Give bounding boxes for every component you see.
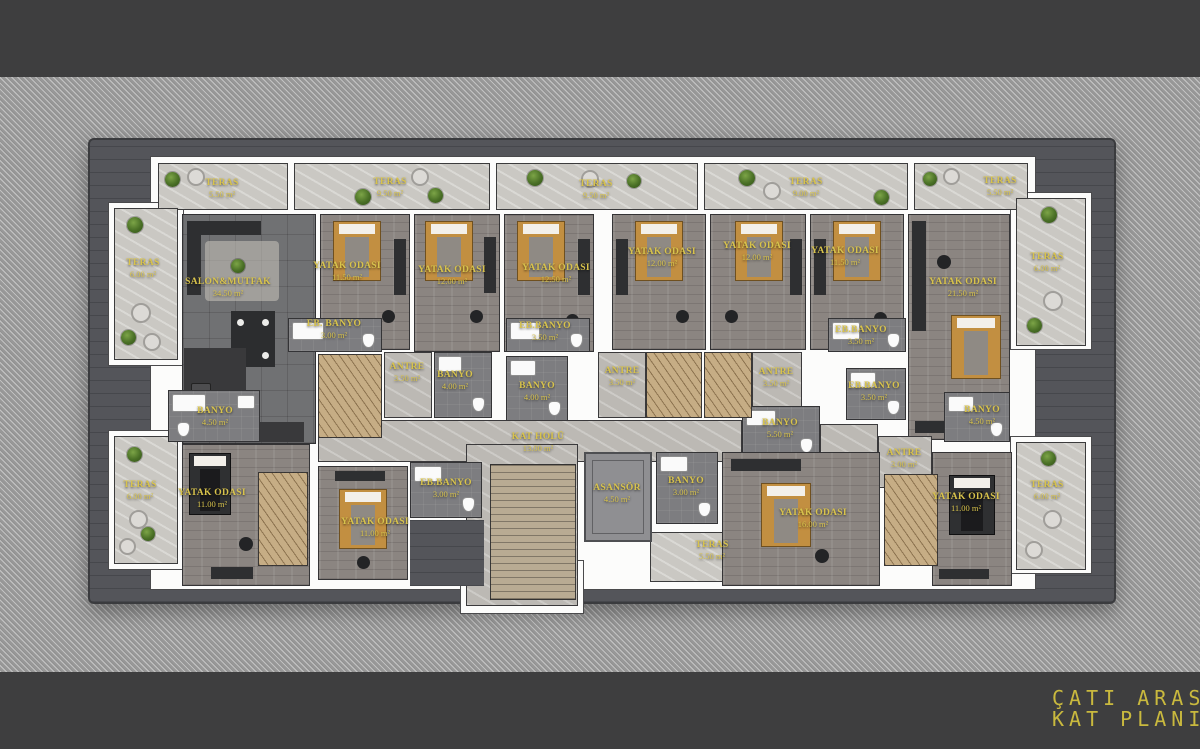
room-name: TERAS [579,179,612,190]
terrace-table [943,168,960,185]
label-eb-banyo-5: EB.BANYO3.00 m² [420,478,472,500]
label-yatak-odasi-3: YATAK ODASI12.50 m² [522,263,590,285]
plan-title-line2: KAT PLANI [1052,709,1200,730]
toilet [570,333,583,348]
room-teras-left-upper [114,208,178,360]
room-area: 12.50 m² [522,275,590,285]
room-name: YATAK ODASI [929,277,997,288]
room-yatak-odasi-4 [612,214,706,350]
room-area: 5.50 m² [762,430,798,440]
room-name: ANTRE [887,448,922,459]
room-name: TERAS [1030,252,1063,263]
room-area: 3.00 m² [420,490,472,500]
room-name: EB.BANYO [848,381,900,392]
top-band [0,0,1200,77]
room-area: 6.00 m² [1030,264,1063,274]
unit-stairs [258,472,308,566]
terrace-table [1043,510,1062,529]
label-banyo-2: BANYO4.00 m² [519,381,555,403]
room-yatak-odasi-5 [710,214,806,350]
label-antre-3: ANTRE3.50 m² [759,367,794,389]
terrace-table [119,538,136,555]
room-area: 12.00 m² [628,259,696,269]
plan-title: ÇATI ARASI KAT PLANI [1052,688,1200,730]
terrace-table [763,182,781,200]
room-area: 11.00 m² [932,504,1000,514]
room-area: 3.00 m² [307,331,361,341]
room-name: BANYO [964,405,1000,416]
label-antre-2: ANTRE3.50 m² [605,366,640,388]
room-area: 11.00 m² [341,529,409,539]
wardrobe [335,471,385,481]
plant [923,172,937,186]
room-area: 12.00 m² [418,277,486,287]
sink [237,395,255,409]
room-area: 3.50 m² [519,333,571,343]
room-name: YATAK ODASI [628,247,696,258]
label-kat-holu: KAT HOLÜ13.00 m² [512,432,564,454]
room-name: TERAS [205,178,238,189]
label-antre-4: ANTRE3.00 m² [887,448,922,470]
label-yatak-odasi-7: YATAK ODASI21.50 m² [929,277,997,299]
label-yatak-odasi-1: YATAK ODASI11.50 m² [313,261,381,283]
room-name: YATAK ODASI [313,261,381,272]
room-area: 4.50 m² [964,417,1000,427]
plant [627,174,641,188]
room-area: 6.00 m² [126,270,159,280]
toilet [800,438,813,453]
label-yatak-odasi-4: YATAK ODASI12.00 m² [628,247,696,269]
room-area: 11.50 m² [313,273,381,283]
room-name: ANTRE [605,366,640,377]
room-name: TERAS [789,177,822,188]
floor-plan-render: ÇATI ARASI KAT PLANI [0,0,1200,749]
wardrobe [731,459,801,471]
label-banyo-6: BANYO3.00 m² [668,476,704,498]
room-name: ANTRE [390,362,425,373]
room-area: 11.00 m² [178,500,246,510]
label-teras-right-upper: TERAS6.00 m² [1030,252,1063,274]
plant [874,190,889,205]
toilet [362,333,375,348]
tv-unit [211,567,253,579]
label-salon-mutfak: SALON&MUTFAK34.50 m² [185,277,271,299]
plant [141,527,155,541]
room-area: 5.50 m² [695,552,728,562]
room-name: YATAK ODASI [723,241,791,252]
room-area: 16.00 m² [779,520,847,530]
plant [1041,451,1056,466]
room-area: 3.00 m² [887,460,922,470]
main-stairs [490,464,576,600]
label-yatak-odasi-11: YATAK ODASI11.00 m² [932,492,1000,514]
plant [127,217,143,233]
terrace-table [131,303,151,323]
toilet [698,502,711,517]
roof-patch [410,520,484,586]
room-name: EB.BANYO [519,321,571,332]
pouf [239,537,253,551]
label-antre-1: ANTRE3.50 m² [390,362,425,384]
label-yatak-odasi-10: YATAK ODASI16.00 m² [779,508,847,530]
room-name: YATAK ODASI [418,265,486,276]
toilet [472,397,485,412]
pouf [676,310,689,323]
room-yatak-odasi-11 [932,452,1012,586]
room-area: 9.50 m² [579,191,612,201]
room-name: YATAK ODASI [178,488,246,499]
plant [355,189,371,205]
terrace-table [143,333,161,351]
room-area: 3.50 m² [605,378,640,388]
label-yatak-odasi-6: YATAK ODASI11.50 m² [811,246,879,268]
room-name: BANYO [762,418,798,429]
label-yatak-odasi-2: YATAK ODASI12.00 m² [418,265,486,287]
room-name: YATAK ODASI [811,246,879,257]
label-teras-2: TERAS9.50 m² [373,177,406,199]
room-name: TERAS [373,177,406,188]
room-area: 3.50 m² [759,379,794,389]
room-area: 6.00 m² [123,492,156,502]
bottom-band [0,672,1200,749]
toilet [887,333,900,348]
room-area: 3.50 m² [848,393,900,403]
label-eb-banyo-3: EB.BANYO3.50 m² [835,325,887,347]
label-teras-right-lower: TERAS6.00 m² [1030,480,1063,502]
room-name: ANTRE [759,367,794,378]
room-name: BANYO [437,370,473,381]
unit-stairs [884,474,938,566]
room-name: YATAK ODASI [779,508,847,519]
unit-stairs [318,354,382,438]
pouf [382,310,395,323]
pouf [725,310,738,323]
sink [510,360,536,376]
room-area: 9.50 m² [373,189,406,199]
plant [121,330,136,345]
label-eb-banyo-4: EB.BANYO3.50 m² [848,381,900,403]
room-name: BANYO [668,476,704,487]
room-name: TERAS [983,176,1016,187]
plant [527,170,543,186]
room-area: 4.00 m² [437,382,473,392]
label-eb-banyo-1: EB. BANYO3.00 m² [307,319,361,341]
room-name: BANYO [519,381,555,392]
plant [165,172,180,187]
sofa [187,221,261,235]
label-teras-bottom: TERAS5.50 m² [695,540,728,562]
label-teras-left-upper: TERAS6.00 m² [126,258,159,280]
label-yatak-odasi-8: YATAK ODASI11.00 m² [178,488,246,510]
room-name: EB.BANYO [835,325,887,336]
label-asansor: ASANSÖR4.50 m² [593,483,641,505]
toilet [177,422,190,437]
label-teras-1: TERAS5.50 m² [205,178,238,200]
terrace-table [1025,541,1043,559]
label-banyo-5: BANYO4.50 m² [964,405,1000,427]
room-area: 11.50 m² [811,258,879,268]
room-name: BANYO [197,406,233,417]
wardrobe [790,239,802,295]
label-yatak-odasi-5: YATAK ODASI12.00 m² [723,241,791,263]
pouf [470,310,483,323]
bed [951,315,1001,379]
room-name: KAT HOLÜ [512,432,564,443]
pouf [815,549,829,563]
room-name: YATAK ODASI [341,517,409,528]
room-name: TERAS [1030,480,1063,491]
room-area: 4.50 m² [593,495,641,505]
plant [127,447,142,462]
room-teras-right-lower [1016,442,1086,570]
plant [428,188,443,203]
plant [231,259,245,273]
label-banyo-4: BANYO4.50 m² [197,406,233,428]
label-eb-banyo-2: EB.BANYO3.50 m² [519,321,571,343]
pouf [937,255,951,269]
unit-stairs [646,352,702,418]
room-area: 5.50 m² [205,190,238,200]
terrace-table [1043,291,1063,311]
room-area: 34.50 m² [185,289,271,299]
room-area: 4.50 m² [197,418,233,428]
room-name: EB.BANYO [420,478,472,489]
room-name: TERAS [123,480,156,491]
room-name: TERAS [126,258,159,269]
plant [739,170,755,186]
room-name: YATAK ODASI [522,263,590,274]
terrace-table [187,168,205,186]
room-name: ASANSÖR [593,483,641,494]
room-name: TERAS [695,540,728,551]
label-yatak-odasi-9: YATAK ODASI11.00 m² [341,517,409,539]
label-teras-left-lower: TERAS6.00 m² [123,480,156,502]
room-area: 4.00 m² [519,393,555,403]
room-area: 3.00 m² [668,488,704,498]
room-name: EB. BANYO [307,319,361,330]
plant [1041,207,1057,223]
room-area: 21.50 m² [929,289,997,299]
toilet [548,401,561,416]
wardrobe [394,239,406,295]
terrace-table [129,510,148,529]
label-teras-3: TERAS9.50 m² [579,179,612,201]
tv-unit [939,569,989,579]
room-area: 13.00 m² [512,444,564,454]
room-area: 3.50 m² [835,337,887,347]
label-teras-5: TERAS5.50 m² [983,176,1016,198]
unit-stairs [704,352,752,418]
room-area: 9.00 m² [789,189,822,199]
room-area: 3.50 m² [390,374,425,384]
pouf [357,556,370,569]
room-area: 12.00 m² [723,253,791,263]
wardrobe [616,239,628,295]
wardrobe [912,221,926,331]
label-banyo-1: BANYO4.00 m² [437,370,473,392]
room-area: 5.50 m² [983,188,1016,198]
plant [1027,318,1042,333]
label-teras-4: TERAS9.00 m² [789,177,822,199]
room-name: YATAK ODASI [932,492,1000,503]
room-area: 6.00 m² [1030,492,1063,502]
terrace-table [411,168,429,186]
sink [660,456,688,472]
room-name: SALON&MUTFAK [185,277,271,288]
label-banyo-3: BANYO5.50 m² [762,418,798,440]
corridor-right [820,424,878,454]
plan-title-line1: ÇATI ARASI [1052,688,1200,709]
